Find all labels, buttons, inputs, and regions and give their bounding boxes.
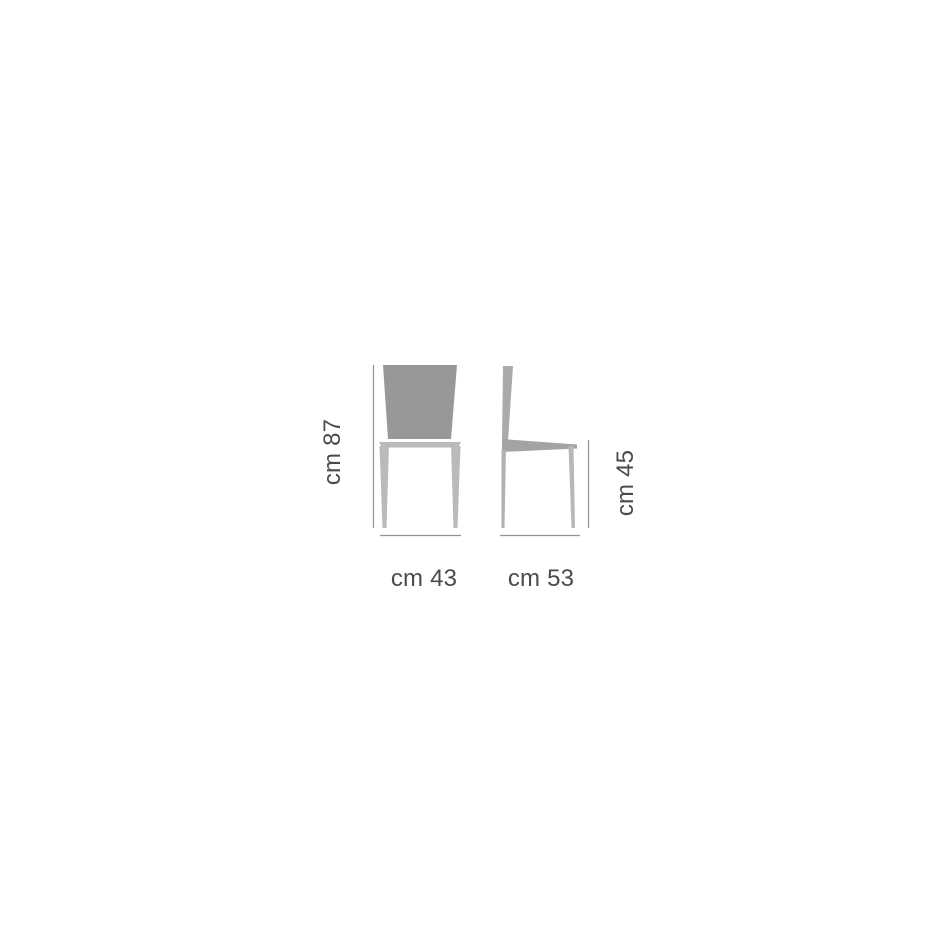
depth-label: cm 53 — [508, 565, 574, 592]
diagram-drawing: cm 87 cm 43 cm 53 cm 45 — [0, 0, 950, 950]
dimension-labels: cm 87 cm 43 cm 53 cm 45 — [319, 419, 639, 592]
chair-dimension-diagram: cm 87 cm 43 cm 53 cm 45 — [0, 0, 950, 950]
side-view-backrest-post — [502, 366, 513, 441]
front-view-left-leg — [380, 446, 390, 528]
seat-height-label: cm 45 — [612, 450, 639, 516]
side-view-back-leg — [502, 450, 507, 528]
front-view-backrest — [383, 365, 457, 439]
front-view-right-leg — [451, 446, 461, 528]
side-view-seat — [502, 439, 577, 452]
width-label: cm 43 — [391, 565, 457, 592]
chair-front-view — [379, 365, 461, 528]
side-view-front-leg — [569, 446, 576, 528]
front-view-seat — [379, 442, 461, 448]
chair-side-view — [502, 366, 578, 528]
height-label: cm 87 — [319, 419, 346, 485]
